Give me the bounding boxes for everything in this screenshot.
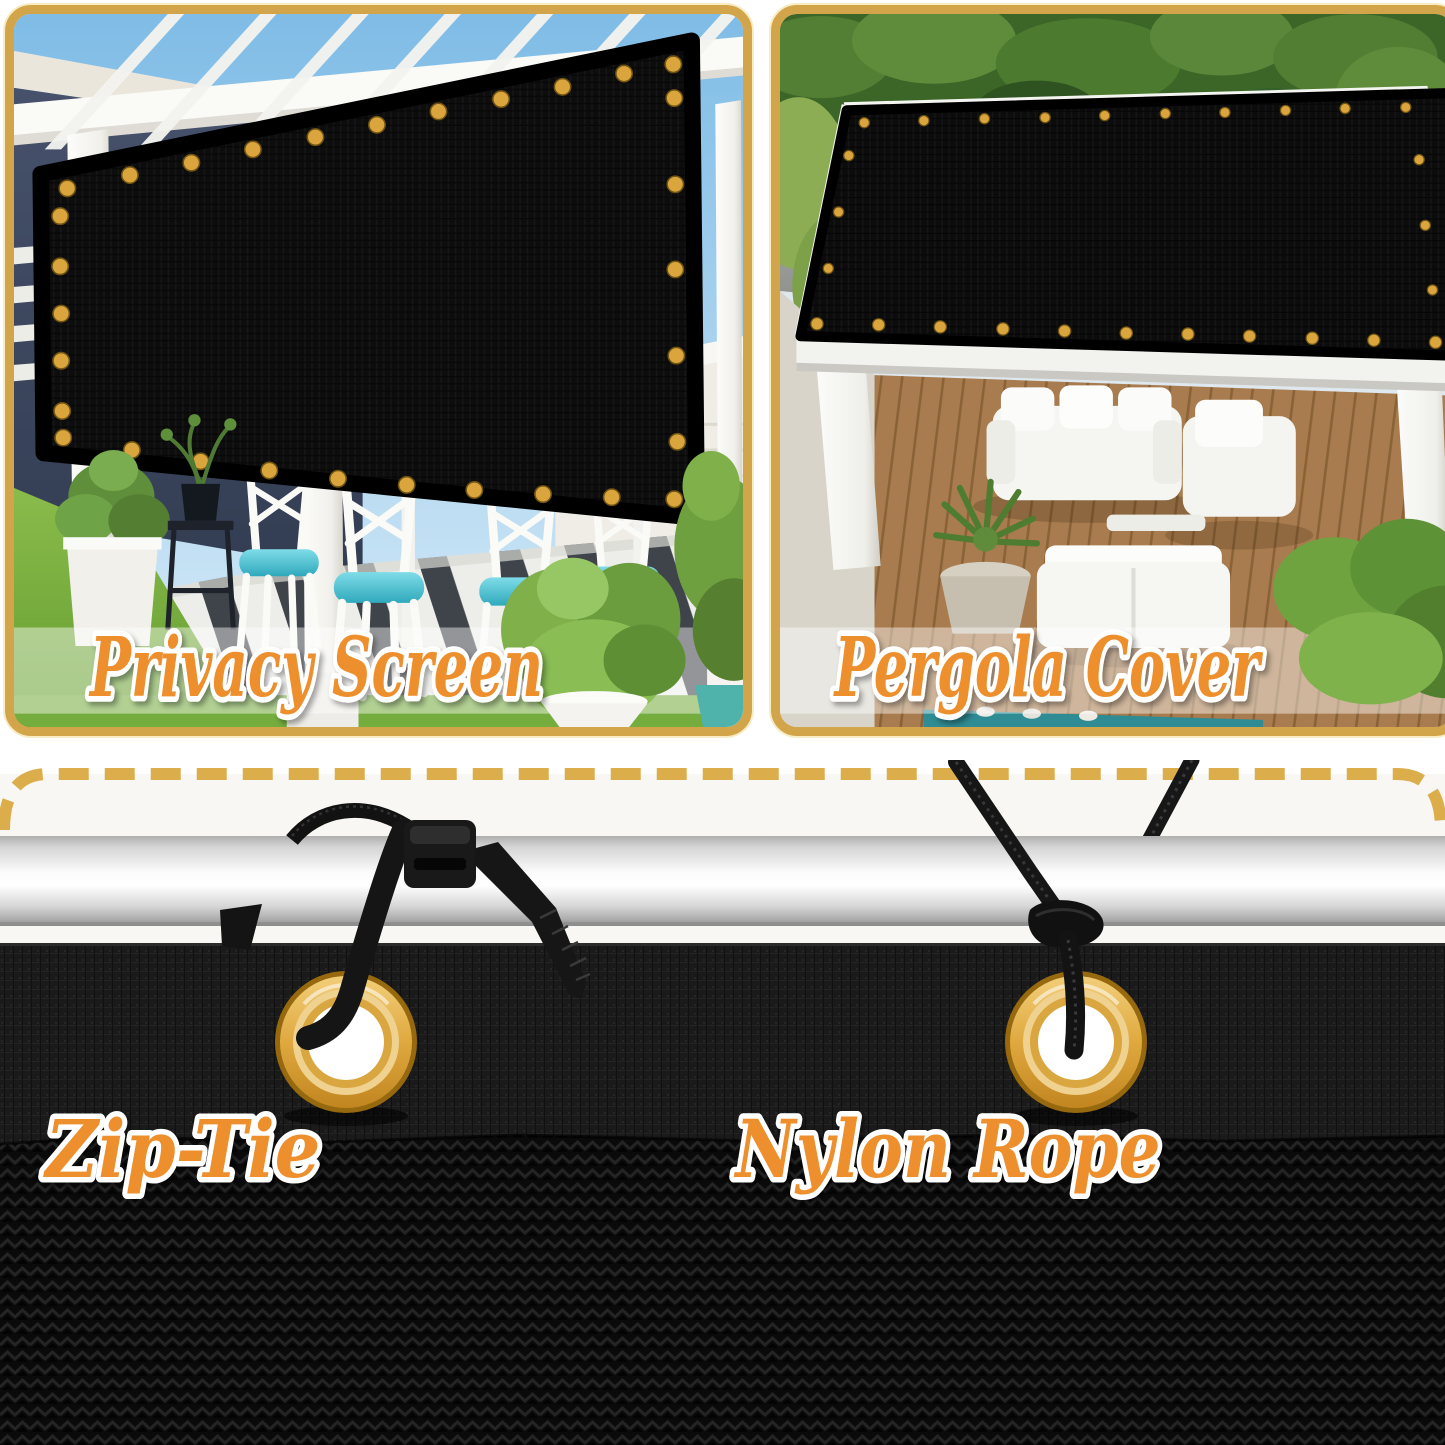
pergola-cover-caption: Pergola Cover: [833, 620, 1263, 716]
pergola-cover-photo: Pergola Cover: [780, 14, 1445, 727]
privacy-screen-caption: Privacy Screen: [89, 620, 544, 716]
attachment-detail-panel: Zip-Tie Nylon Rope: [0, 760, 1445, 1445]
privacy-screen-photo: Privacy Screen: [14, 14, 743, 727]
privacy-screen-panel: Privacy Screen: [5, 5, 752, 736]
attachment-detail-photo: Zip-Tie Nylon Rope: [0, 760, 1445, 1445]
product-image-collage: Privacy Screen: [0, 0, 1445, 1445]
nylon-rope-caption: Nylon Rope: [733, 1102, 1160, 1196]
black-pergola-cover: [801, 93, 1445, 356]
pergola-cover-panel: Pergola Cover: [771, 5, 1445, 736]
zip-tie-caption: Zip-Tie: [43, 1102, 321, 1196]
metal-pole: [0, 836, 1445, 926]
